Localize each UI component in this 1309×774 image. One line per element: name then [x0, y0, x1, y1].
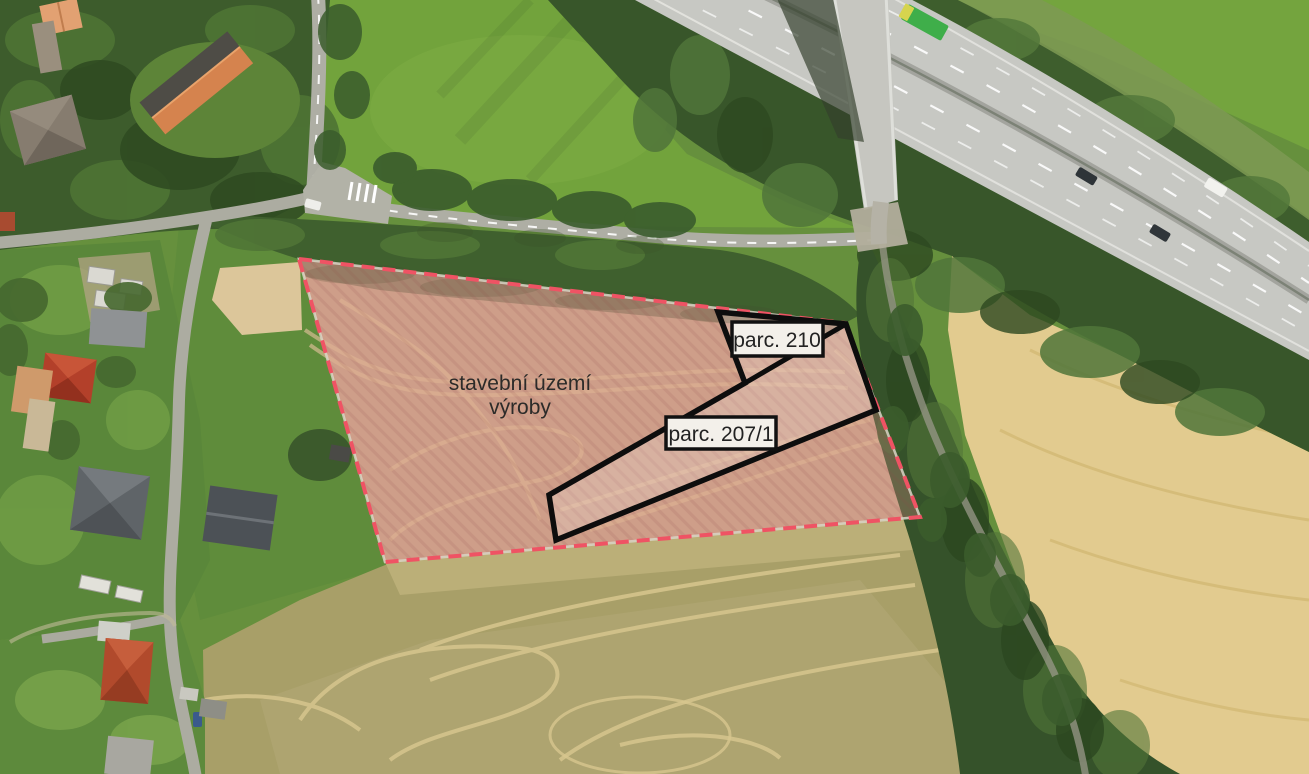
svg-text:výroby: výroby	[489, 396, 551, 419]
svg-text:parc. 210: parc. 210	[733, 329, 821, 352]
svg-text:parc. 207/1: parc. 207/1	[668, 423, 773, 446]
svg-text:stavební území: stavební území	[449, 372, 592, 395]
